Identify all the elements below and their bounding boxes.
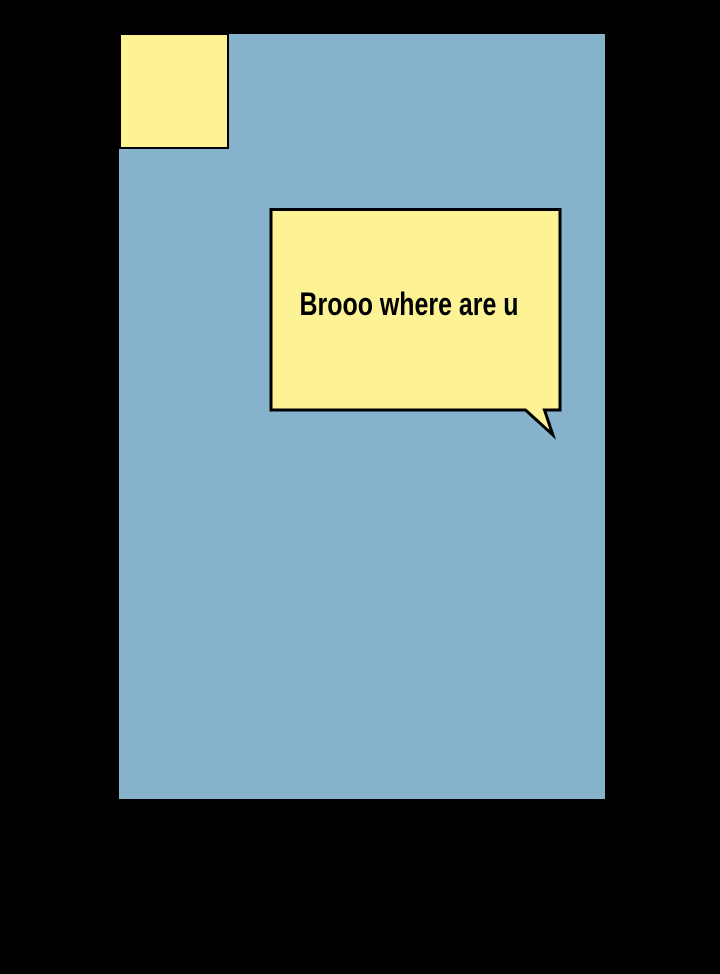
svg-text:Brooo where are u: Brooo where are u	[300, 286, 519, 322]
